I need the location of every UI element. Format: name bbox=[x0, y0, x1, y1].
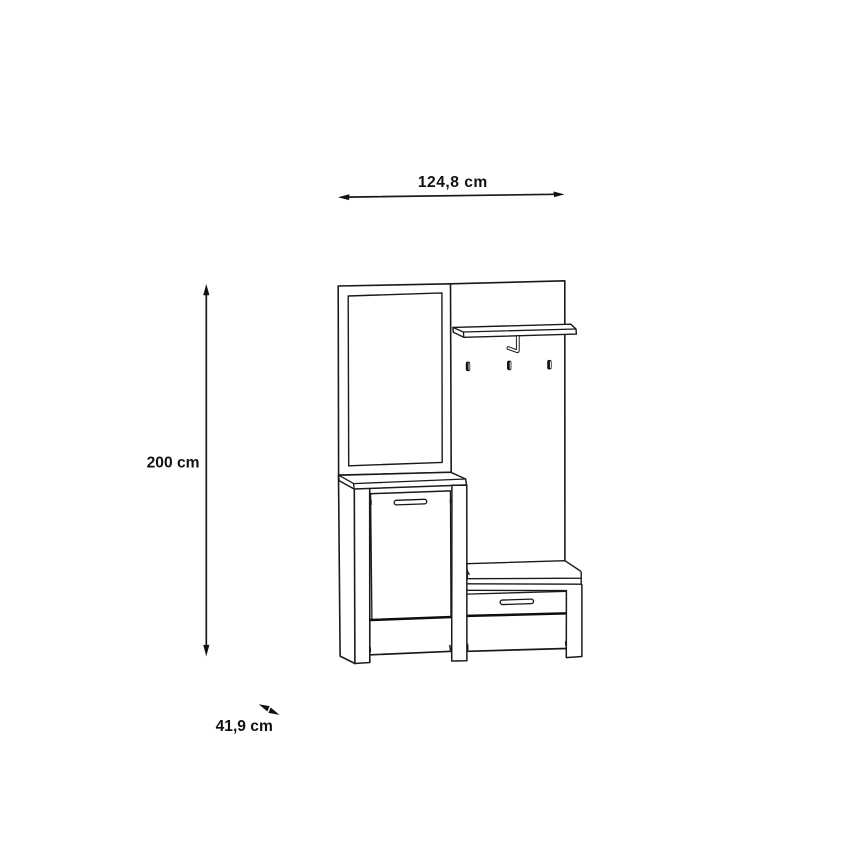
svg-text:200 cm: 200 cm bbox=[147, 454, 200, 471]
svg-text:41,9 cm: 41,9 cm bbox=[216, 718, 273, 735]
svg-text:124,8 cm: 124,8 cm bbox=[418, 174, 488, 191]
